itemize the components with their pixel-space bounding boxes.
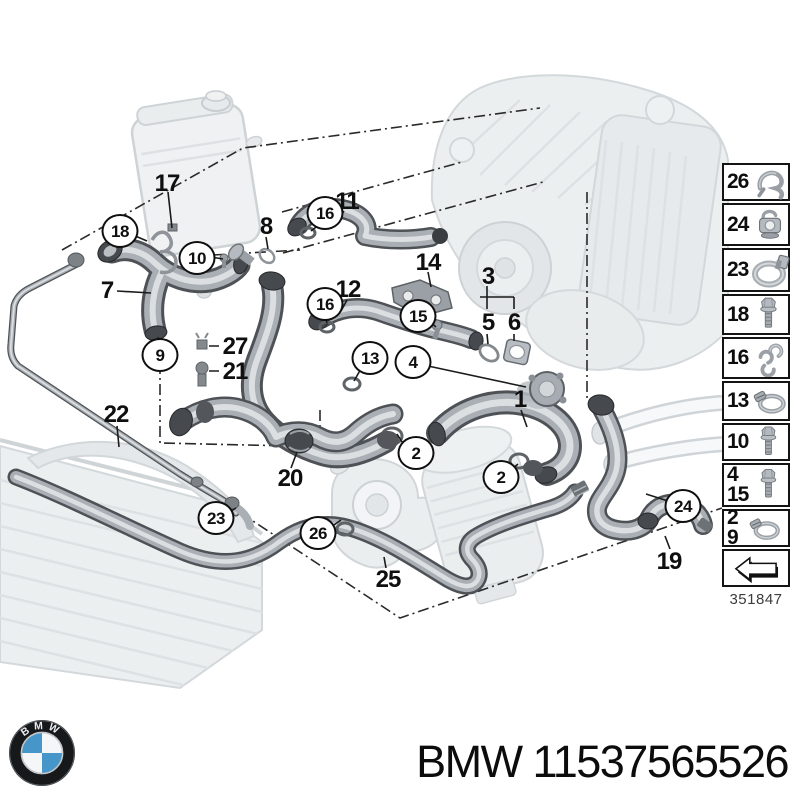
direction-arrow-icon (725, 551, 787, 585)
hose-clamp-icon (748, 383, 792, 419)
legend-number: 15 (727, 485, 748, 505)
sensor-27 (197, 340, 207, 349)
clamp-ring-icon (748, 250, 792, 290)
legend-item-18: 18 (722, 294, 790, 335)
legend-number: 18 (727, 305, 748, 325)
flange-bolt-icon (748, 296, 788, 333)
legend-panel: 26 24 23 18 16 13 10 4 (722, 163, 790, 608)
parts-diagram-page: 1718108711161216143561513492721222023261… (0, 0, 800, 800)
legend-number: 2 (727, 508, 738, 528)
flange-bolt-icon (749, 466, 787, 504)
legend-number: 23 (727, 260, 748, 280)
legend-number: 16 (727, 348, 748, 368)
hose-12 (305, 306, 485, 351)
hex-bolt-icon (749, 425, 787, 460)
spring-clip-icon (748, 164, 792, 200)
legend-number: 26 (727, 172, 748, 192)
diagram-art (0, 0, 800, 800)
legend-item-2-9: 2 9 (722, 509, 790, 547)
legend-item-23: 23 (722, 248, 790, 292)
legend-item-10: 10 (722, 423, 790, 461)
gasket-6 (503, 339, 531, 366)
retainer-clip-icon (748, 339, 792, 377)
sensor-21 (196, 362, 208, 374)
legend-number: 10 (727, 432, 748, 452)
legend-number: 24 (727, 215, 748, 235)
legend-item-16: 16 (722, 337, 790, 379)
part-number-text: BMW 11537565526 (416, 736, 788, 788)
legend-item-13: 13 (722, 381, 790, 421)
bmw-logo: BMW (6, 717, 86, 797)
legend-number: 9 (727, 528, 738, 548)
hose-clamp-icon (743, 511, 787, 545)
legend-item-24: 24 (722, 203, 790, 246)
legend-item-4-15: 4 15 (722, 463, 790, 507)
o-ring-8 (257, 246, 277, 265)
legend-number: 13 (727, 391, 748, 411)
holder-clip-icon (748, 206, 792, 244)
diagram-number: 351847 (722, 591, 790, 608)
legend-item-arrow (722, 549, 790, 587)
legend-item-26: 26 (722, 163, 790, 201)
legend-number: 4 (727, 465, 748, 485)
